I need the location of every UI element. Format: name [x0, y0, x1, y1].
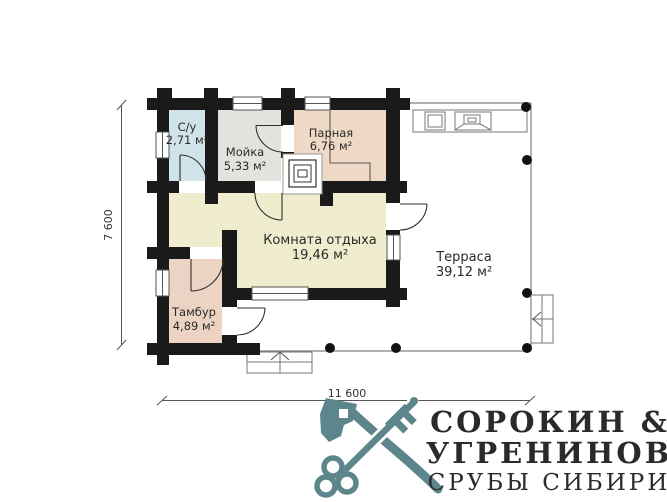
room-area-moyka: 5,33 м²: [224, 159, 267, 173]
room-label-terrasa: Терраса: [435, 250, 492, 265]
entry-steps-icon: [247, 352, 312, 373]
window-komnata-bottom: [252, 287, 308, 300]
window-tambur-left: [156, 270, 169, 296]
room-label-su: С/у: [178, 120, 197, 134]
dimension-height-label: 7 600: [102, 209, 115, 241]
logo-tagline: СРУБЫ СИБИРИ: [428, 470, 667, 496]
logo-company-line1: СОРОКИН &: [430, 405, 667, 439]
window-komnata-right: [387, 235, 400, 260]
room-label-komnata: Комната отдыха: [263, 233, 377, 248]
stove-icon: [283, 154, 322, 194]
dimension-height: [117, 100, 126, 350]
room-area-parnaya: 6,76 м²: [310, 139, 353, 153]
room-label-parnaya: Парная: [309, 126, 353, 140]
room-label-moyka: Мойка: [226, 145, 264, 159]
room-area-terrasa: 39,12 м²: [436, 265, 492, 280]
window-moyka-top: [233, 97, 262, 110]
terrace-bench-icon: [413, 110, 527, 132]
floor-plan-canvas: С/у 2,71 м² Мойка 5,33 м² Парная 6,76 м²…: [0, 0, 667, 502]
dimension-width-label: 11 600: [328, 387, 367, 400]
room-area-su: 2,71 м²: [166, 133, 209, 147]
room-label-tambur: Тамбур: [171, 305, 216, 319]
logo-emblem: [317, 397, 438, 495]
room-area-tambur: 4,89 м²: [173, 319, 216, 333]
room-area-komnata: 19,46 м²: [292, 248, 348, 263]
terrace-steps-icon: [531, 295, 553, 343]
floor-plan-page: С/у 2,71 м² Мойка 5,33 м² Парная 6,76 м²…: [0, 0, 667, 502]
logo-company-line2: УГРЕНИНОВ: [426, 436, 667, 470]
door-komnata-terrace: [400, 204, 427, 230]
table-icon: [455, 112, 491, 130]
window-parnaya-top: [305, 97, 330, 110]
door-tambur-terrace: [237, 308, 265, 335]
